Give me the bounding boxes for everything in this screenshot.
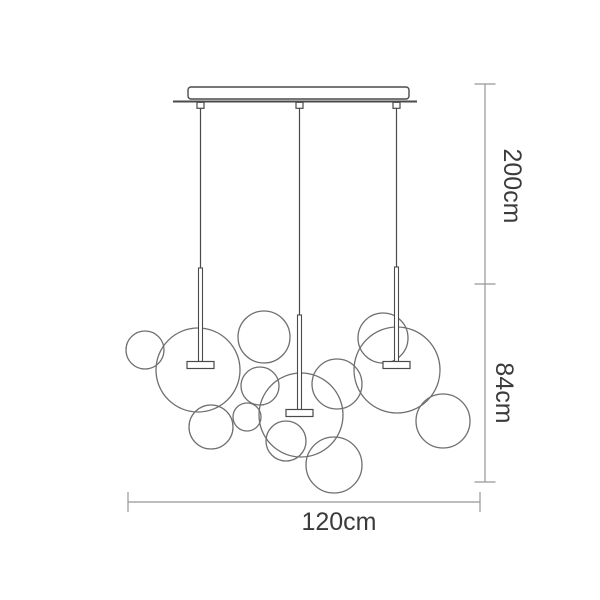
label-width: 120cm xyxy=(301,508,376,536)
pendant-cords xyxy=(187,108,410,417)
product-dimension-diagram: 200cm 84cm 120cm xyxy=(0,0,600,600)
canopy xyxy=(173,87,417,108)
glass-bubble xyxy=(126,331,164,369)
glass-bubble xyxy=(266,421,306,461)
label-drop-height: 200cm xyxy=(498,148,526,223)
disc-fitting xyxy=(187,362,214,369)
cord-hanger xyxy=(393,102,400,108)
stem-rod xyxy=(395,267,399,362)
glass-bubble xyxy=(306,437,362,493)
cord-hanger xyxy=(197,102,204,108)
glass-bubble xyxy=(416,394,470,448)
disc-fitting xyxy=(383,362,410,369)
stem-rod xyxy=(298,315,302,410)
glass-bubble xyxy=(189,405,233,449)
glass-bubble xyxy=(358,313,408,363)
disc-fitting xyxy=(286,410,313,417)
stem-rod xyxy=(199,268,203,362)
label-fixture-height: 84cm xyxy=(490,362,518,423)
cord-hanger xyxy=(296,102,303,108)
diagram-svg: 200cm 84cm 120cm xyxy=(0,0,600,600)
glass-bubble xyxy=(238,311,290,363)
glass-bubble xyxy=(241,367,279,405)
canopy-plate xyxy=(188,87,409,99)
glass-bubble xyxy=(233,403,261,431)
